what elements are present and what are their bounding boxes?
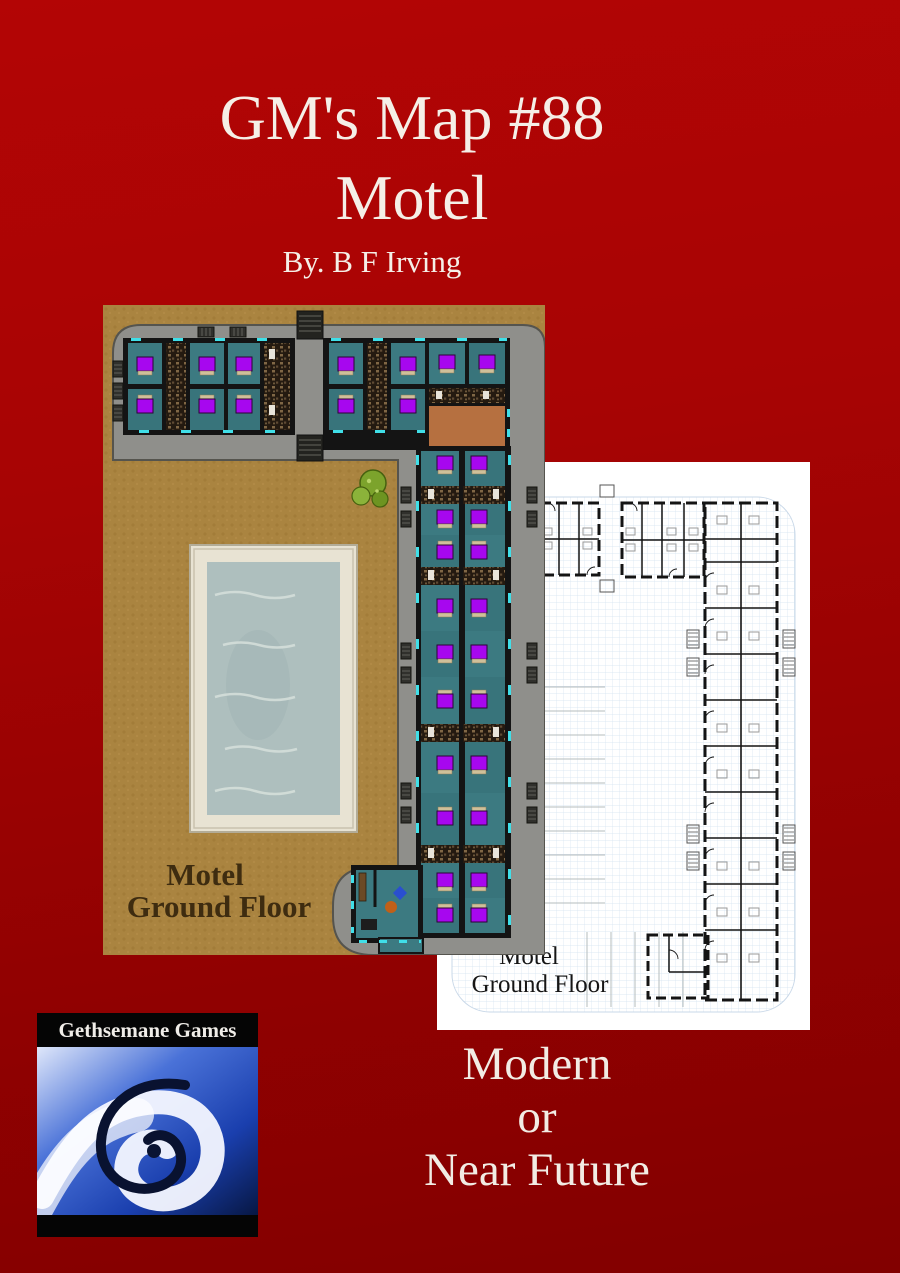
page-title-line1: GM's Map #88: [112, 78, 712, 158]
colored-map-label-line2: Ground Floor: [127, 889, 312, 924]
genre-line3: Near Future: [337, 1144, 737, 1197]
map-pool: [190, 545, 357, 832]
colored-map-drawing: Motel Ground Floor: [103, 305, 545, 955]
map-office: [351, 865, 423, 953]
colored-map-label-line1: Motel: [166, 857, 244, 892]
product-cover: GM's Map #88 Motel By. B F Irving: [0, 0, 900, 1273]
map-room-block-a: [123, 338, 295, 435]
map-vertical-wing: [416, 446, 511, 938]
blueprint-label-line2: Ground Floor: [472, 971, 609, 998]
genre-line2: or: [337, 1091, 737, 1144]
genre-line1: Modern: [337, 1038, 737, 1091]
title-block: GM's Map #88 Motel: [112, 78, 712, 238]
spiral-logo-image: [37, 1047, 258, 1215]
genre-text: Modern or Near Future: [337, 1038, 737, 1197]
publisher-logo: Gethsemane Games: [37, 1013, 258, 1237]
map-room-block-b: [323, 338, 510, 450]
page-title-line2: Motel: [112, 158, 712, 238]
map-lobby-room: [429, 406, 505, 446]
colored-map: Motel Ground Floor: [103, 305, 545, 955]
publisher-name: Gethsemane Games: [37, 1018, 258, 1043]
author-byline: By. B F Irving: [132, 244, 612, 280]
